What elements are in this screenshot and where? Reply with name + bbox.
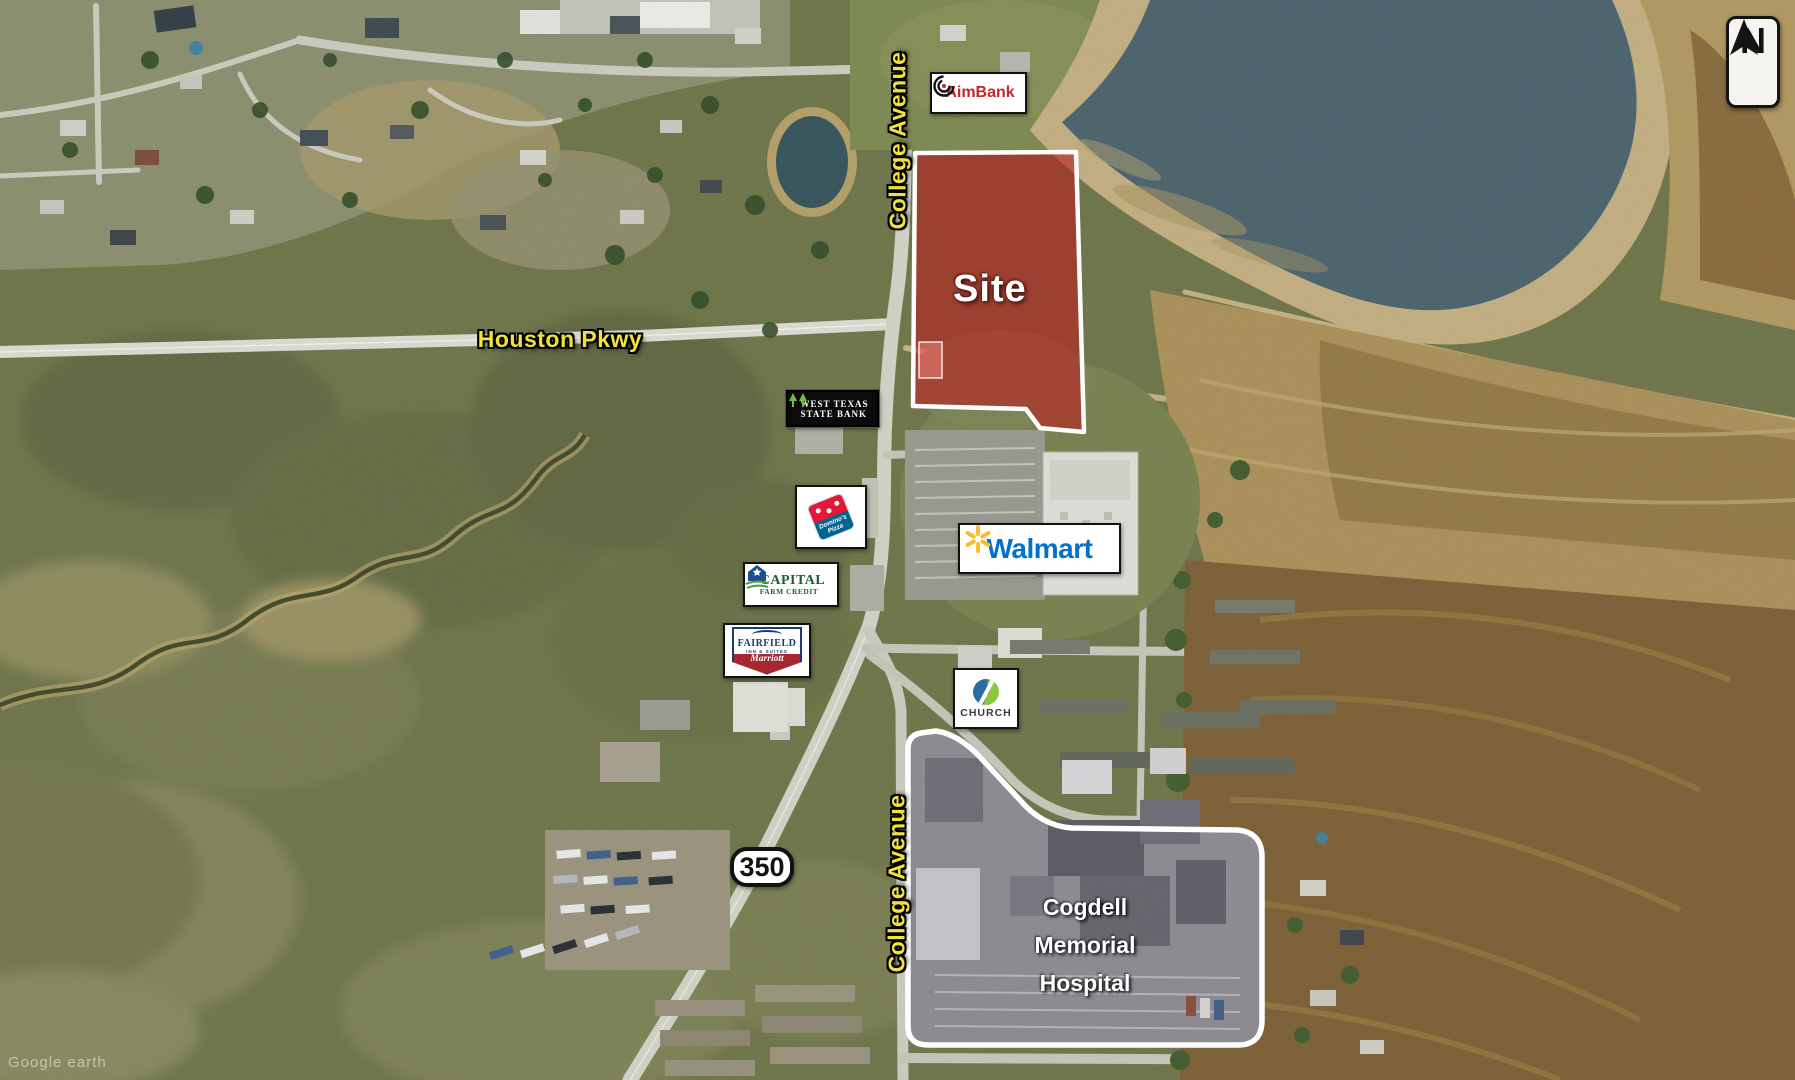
church-label: CHURCH — [953, 668, 1019, 729]
capital-farm-credit-label: CAPITAL FARM CREDIT — [743, 562, 839, 607]
capital-name-line2: FARM CREDIT — [760, 587, 825, 596]
church-name: CHURCH — [960, 707, 1012, 719]
tree-icon — [788, 392, 808, 410]
walmart-name: Walmart — [987, 533, 1093, 565]
hospital-line2: Memorial — [1035, 926, 1136, 964]
wtsb-name-line2: STATE BANK — [801, 409, 869, 419]
aimbank-target-icon — [932, 74, 956, 98]
satellite-map: College Avenue College Avenue Houston Pk… — [0, 0, 1795, 1080]
google-earth-watermark: Google earth — [8, 1054, 107, 1071]
walmart-label: Walmart — [958, 523, 1121, 574]
site-label: Site — [953, 268, 1027, 311]
wtsb-name-line1: WEST TEXAS — [801, 399, 869, 409]
west-texas-state-bank-label: WEST TEXAS STATE BANK — [786, 390, 879, 427]
north-compass: N — [1726, 16, 1780, 108]
fairfield-label: FAIRFIELD INN & SUITES Marriott — [723, 623, 811, 678]
walmart-spark-icon — [964, 525, 992, 553]
capital-name-line1: CAPITAL — [760, 574, 825, 587]
road-label-college-avenue-south: College Avenue — [884, 794, 911, 974]
aimbank-label: AimBank — [930, 72, 1027, 114]
marriott-band: Marriott — [734, 654, 800, 673]
dominos-label: Domino's Pizza — [795, 485, 867, 549]
church-globe-icon — [973, 679, 999, 705]
north-arrow-icon — [1729, 19, 1759, 57]
capital-barn-icon — [745, 564, 769, 590]
road-label-college-avenue-north: College Avenue — [885, 51, 912, 231]
fairfield-name: FAIRFIELD — [738, 639, 797, 649]
marriott-name: Marriott — [750, 654, 783, 665]
highway-350-shield: 350 — [730, 847, 794, 887]
hospital-line3: Hospital — [1035, 964, 1136, 1002]
site-pad-parcel — [919, 342, 942, 378]
dominos-diamond-icon: Domino's Pizza — [808, 494, 855, 541]
hospital-line1: Cogdell — [1035, 888, 1136, 926]
fairfield-shield: FAIRFIELD INN & SUITES Marriott — [732, 627, 802, 675]
hospital-label: Cogdell Memorial Hospital — [1035, 888, 1136, 1002]
road-label-houston-pkwy: Houston Pkwy — [460, 326, 660, 353]
